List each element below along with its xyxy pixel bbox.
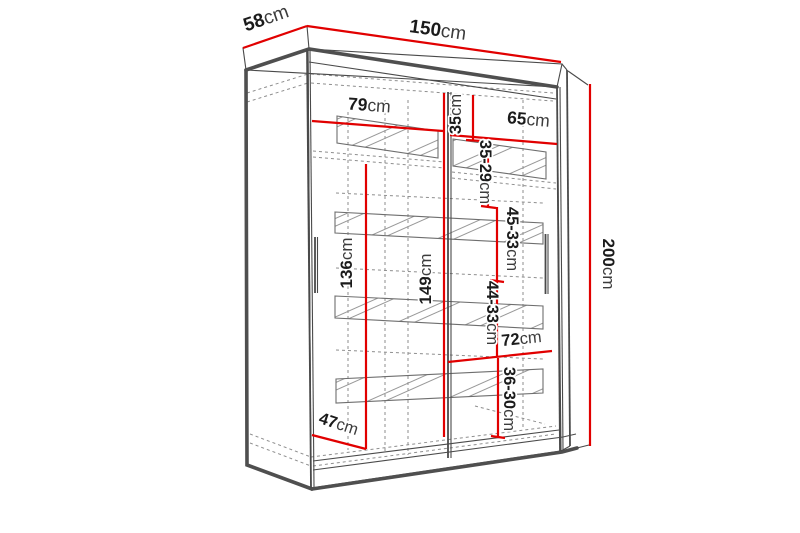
dim-label-floor-depth: 47cm bbox=[317, 409, 361, 439]
dim-label-gap-third: 45-33cm bbox=[503, 207, 521, 271]
mirror-band-top-left bbox=[337, 116, 438, 158]
dim-label-left-hanging: 136cm bbox=[337, 237, 356, 288]
dim-label-gap-second: 35-29cm bbox=[476, 140, 494, 204]
left-side-face bbox=[246, 49, 311, 488]
mirror-band-top-right bbox=[453, 139, 546, 179]
dim-label-gap-fifth: 36-30cm bbox=[500, 367, 518, 431]
dim-label-height-right: 200cm bbox=[599, 238, 618, 289]
bottom-left-edge bbox=[246, 70, 312, 489]
dim-label-gap-top: 35cm bbox=[447, 94, 465, 134]
dim-label-bottom-right: 72cm bbox=[500, 328, 542, 350]
dim-label-gap-fourth: 44-33cm bbox=[483, 281, 501, 345]
dim-label-depth-top: 58cm bbox=[241, 1, 292, 36]
dim-line-bottom-right bbox=[448, 351, 552, 362]
wardrobe-dimension-diagram-page: 58cm 150cm 79cm 65cm 35cm 35-29cm 45-33c… bbox=[0, 0, 800, 533]
wardrobe-dimension-diagram: 58cm 150cm 79cm 65cm 35cm 35-29cm 45-33c… bbox=[0, 0, 800, 533]
bottom-front-edge bbox=[312, 448, 577, 489]
dim-label-left-section: 79cm bbox=[347, 94, 391, 117]
dim-line-floor-depth bbox=[312, 435, 366, 449]
dim-label-interior-height: 149cm bbox=[416, 253, 435, 304]
dim-label-right-section: 65cm bbox=[506, 107, 550, 131]
